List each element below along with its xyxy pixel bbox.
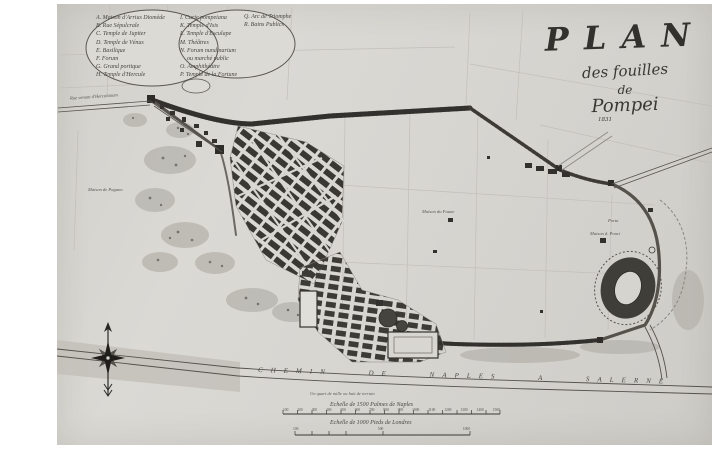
tick: 300: [312, 408, 317, 412]
legend-entry: I. Curie pompeiana: [180, 14, 237, 22]
legend-entry: E. Basilique: [96, 47, 165, 55]
quadriporticus: [388, 332, 438, 358]
street-of-tombs: [58, 101, 222, 152]
label-house-west: Maison de Pagano: [88, 187, 123, 192]
legend-entry: N. Forum nundinarium: [180, 47, 237, 55]
legend-entry: O. Amphithéâtre: [180, 63, 237, 71]
theatre-small: [397, 321, 408, 332]
map-year: 1831: [585, 117, 625, 123]
tick: 1000: [463, 427, 470, 431]
legend-entry: L. Temple d'Esculape: [180, 30, 237, 38]
legend-entry: ou marché public: [180, 55, 237, 63]
legend-entry: H. Temple d'Hercule: [96, 71, 165, 79]
tick: 700: [369, 408, 374, 412]
temple-isis-mark: [376, 300, 383, 306]
tick: 1100: [428, 408, 435, 412]
legend-entry: Q. Arc de Triomphe: [244, 13, 291, 21]
tick: 1500: [493, 408, 500, 412]
tick: 400: [326, 408, 331, 412]
label-house-east: Maison d. Ponci: [590, 231, 620, 236]
tick: 800: [383, 408, 388, 412]
tick: 1400: [477, 408, 484, 412]
legend-entry: B. Rue Sépulcrale: [96, 22, 165, 30]
legend-entry: G. Grand portique: [96, 63, 165, 71]
scale-2-ticks: 1005001000: [293, 427, 470, 431]
legend-entry: R. Bains Publics: [244, 21, 291, 29]
legend-entry: K. Temple d'Isis: [180, 22, 237, 30]
label-porta-east: Porta: [608, 218, 618, 223]
legend-entry: D. Temple de Vénus: [96, 39, 165, 47]
map-title: PLAN: [539, 15, 710, 59]
compass-rose: [91, 322, 125, 396]
tick: 600: [355, 408, 360, 412]
excavated-district-central: [298, 252, 446, 362]
legend-column-3: Q. Arc de Triomphe R. Bains Publics: [244, 13, 291, 29]
legend-entry: A. Maison d'Arrius Diomède: [96, 14, 165, 22]
tick: 900: [398, 408, 403, 412]
tick: 1200: [444, 408, 451, 412]
tick: 200: [297, 408, 302, 412]
scale-1-ticks: 1002003004005006007008009001000110012001…: [283, 408, 500, 412]
forum-outline: [300, 291, 317, 327]
theatre-large: [379, 309, 397, 327]
amphitheatre-annex: [649, 247, 655, 253]
legend-entry: F. Forum: [96, 55, 165, 63]
legend-entry: M. Théâtres: [180, 39, 237, 47]
scale-note: Un quart de mille ou huit de terrain: [310, 391, 375, 396]
legend-column-1: A. Maison d'Arrius Diomède B. Rue Sépulc…: [96, 14, 165, 80]
tick: 100: [293, 427, 298, 431]
tick: 100: [283, 408, 288, 412]
legend-entry: C. Temple de Jupiter: [96, 30, 165, 38]
scale-2-label: Echelle de 1000 Pieds de Londres: [330, 420, 412, 426]
tick: 500: [378, 427, 383, 431]
tick: 1300: [460, 408, 467, 412]
engraved-map-page: { "title": { "plan": "PLAN", "line2": "d…: [0, 0, 720, 450]
legend-column-2: I. Curie pompeiana K. Temple d'Isis L. T…: [180, 14, 237, 80]
legend-entry: P. Temple de la Fortune: [180, 71, 237, 79]
label-house-center: Maison du Faune: [422, 209, 454, 214]
tick: 500: [340, 408, 345, 412]
tick: 1000: [412, 408, 419, 412]
